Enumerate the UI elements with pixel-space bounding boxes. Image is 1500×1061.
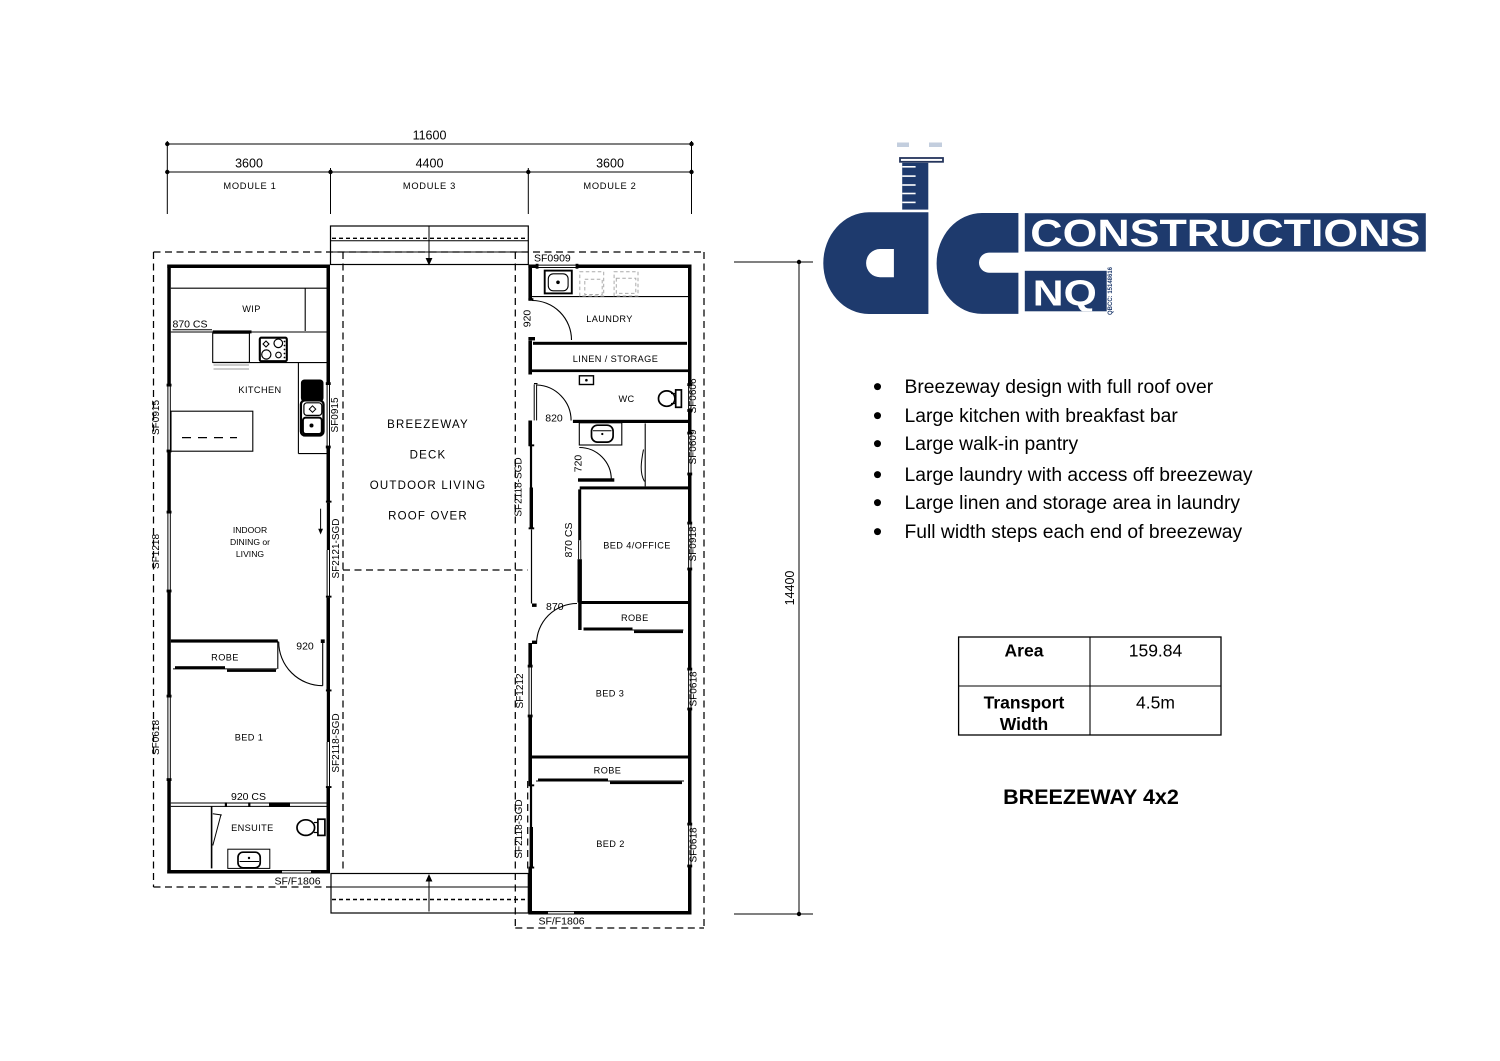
svg-text:INDOOR: INDOOR [233, 525, 267, 535]
svg-text:Width: Width [1000, 714, 1048, 734]
svg-text:SF0618: SF0618 [689, 671, 700, 706]
svg-text:OUTDOOR LIVING: OUTDOOR LIVING [370, 480, 486, 492]
svg-text:DINING or: DINING or [230, 537, 270, 547]
svg-text:CONSTRUCTIONS: CONSTRUCTIONS [1030, 213, 1420, 255]
svg-text:SF0618: SF0618 [151, 720, 162, 755]
svg-text:SF0915: SF0915 [151, 400, 162, 435]
svg-text:Full width steps each end of b: Full width steps each end of breezeway [905, 522, 1243, 543]
svg-text:SF/F1806: SF/F1806 [274, 876, 320, 888]
svg-text:920 CS: 920 CS [231, 791, 266, 803]
svg-text:Large laundry with access off: Large laundry with access off breezeway [905, 465, 1253, 486]
svg-text:WIP: WIP [242, 304, 261, 314]
svg-text:SF2121-SGD: SF2121-SGD [331, 518, 342, 578]
svg-text:920: 920 [296, 641, 314, 653]
svg-text:SF0618: SF0618 [689, 827, 700, 862]
svg-text:11600: 11600 [413, 129, 447, 143]
svg-text:SF0918: SF0918 [688, 526, 699, 561]
svg-text:SF1212: SF1212 [515, 673, 526, 708]
svg-text:LINEN / STORAGE: LINEN / STORAGE [573, 354, 658, 364]
svg-text:BED 1: BED 1 [235, 733, 264, 743]
svg-text:MODULE 3: MODULE 3 [403, 181, 456, 191]
svg-text:ROBE: ROBE [621, 613, 649, 623]
svg-text:NQ: NQ [1033, 273, 1097, 314]
svg-text:SF0915: SF0915 [330, 397, 341, 432]
svg-text:SF2118-SGD: SF2118-SGD [514, 457, 525, 516]
svg-text:870 CS: 870 CS [173, 319, 208, 331]
svg-text:BREEZEWAY 4x2: BREEZEWAY 4x2 [1003, 785, 1179, 809]
svg-text:ROBE: ROBE [594, 766, 622, 776]
svg-text:SF1218: SF1218 [151, 534, 162, 569]
svg-text:BED 3: BED 3 [596, 689, 625, 699]
svg-text:3600: 3600 [235, 157, 263, 171]
svg-text:Large linen and storage area i: Large linen and storage area in laundry [905, 493, 1241, 514]
svg-text:Large kitchen with breakfast b: Large kitchen with breakfast bar [905, 406, 1179, 427]
svg-text:MODULE 1: MODULE 1 [223, 181, 276, 191]
svg-text:Area: Area [1005, 641, 1044, 661]
svg-text:SF0606: SF0606 [688, 378, 699, 413]
svg-text:DECK: DECK [410, 450, 447, 462]
svg-text:BED 4/OFFICE: BED 4/OFFICE [603, 541, 671, 551]
svg-text:4400: 4400 [416, 157, 444, 171]
svg-text:870 CS: 870 CS [563, 522, 575, 557]
svg-text:BED 2: BED 2 [596, 839, 625, 849]
svg-text:QBCC: 15148616: QBCC: 15148616 [1108, 266, 1114, 315]
svg-text:SF0609: SF0609 [688, 429, 699, 464]
svg-text:14400: 14400 [783, 571, 797, 606]
svg-text:ROOF OVER: ROOF OVER [388, 511, 468, 523]
svg-text:Breezeway design with full roo: Breezeway design with full roof over [905, 377, 1214, 398]
svg-text:Transport: Transport [984, 693, 1065, 713]
svg-text:ENSUITE: ENSUITE [231, 823, 274, 833]
svg-text:Large walk-in pantry: Large walk-in pantry [905, 434, 1079, 455]
svg-text:820: 820 [545, 413, 563, 425]
svg-text:SF/F1806: SF/F1806 [538, 916, 584, 928]
svg-text:920: 920 [522, 310, 534, 328]
svg-text:SF2118-SGD: SF2118-SGD [514, 799, 525, 858]
svg-text:SF0909: SF0909 [534, 253, 571, 265]
svg-text:ROBE: ROBE [211, 653, 239, 663]
svg-text:MODULE 2: MODULE 2 [583, 181, 636, 191]
svg-text:4.5m: 4.5m [1136, 693, 1175, 713]
svg-text:KITCHEN: KITCHEN [238, 385, 281, 395]
svg-text:LIVING: LIVING [236, 549, 264, 559]
svg-text:SF2118-SGD: SF2118-SGD [331, 713, 342, 772]
svg-text:720: 720 [573, 455, 585, 473]
svg-text:LAUNDRY: LAUNDRY [586, 314, 633, 324]
svg-text:WC: WC [618, 394, 634, 404]
svg-text:159.84: 159.84 [1129, 641, 1183, 661]
svg-text:870: 870 [546, 601, 564, 613]
svg-text:3600: 3600 [596, 157, 624, 171]
svg-text:BREEZEWAY: BREEZEWAY [387, 419, 469, 431]
